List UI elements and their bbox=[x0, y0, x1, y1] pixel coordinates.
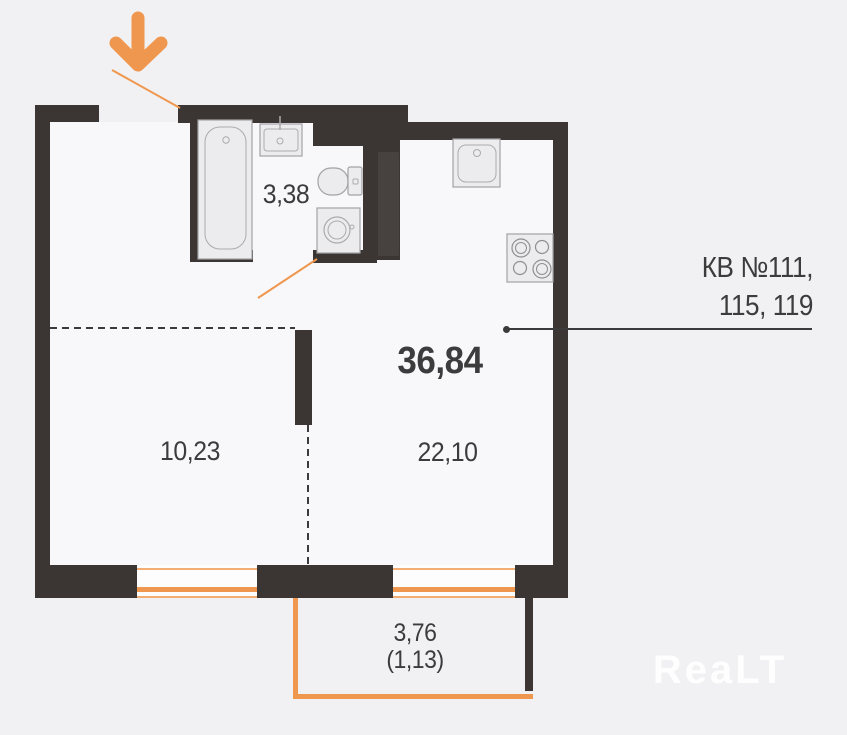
bath-sink-icon bbox=[260, 116, 302, 156]
total-area-label: 36,84 bbox=[376, 340, 505, 383]
washing-machine-icon bbox=[317, 208, 360, 253]
entrance-door-line bbox=[112, 70, 180, 108]
bathroom-area-label: 3,38 bbox=[244, 179, 329, 210]
room-area-label: 10,23 bbox=[139, 436, 240, 467]
balcony-area-label: 3,76 bbox=[360, 619, 470, 648]
bathroom-door-line bbox=[258, 259, 317, 298]
apartment-numbers-label: КВ №111, 115, 119 bbox=[624, 249, 813, 325]
entrance-arrow-icon bbox=[116, 18, 161, 65]
kitchen-sink-icon bbox=[453, 139, 500, 187]
balcony-reduced-area-label: (1,13) bbox=[360, 646, 470, 675]
stove-icon bbox=[507, 234, 553, 282]
apartment-numbers-line2: 115, 119 bbox=[624, 287, 813, 325]
floor-plan: 3,38 36,84 22,10 10,23 3,76 (1,13) КВ №1… bbox=[0, 0, 847, 735]
living-area-label: 22,10 bbox=[395, 437, 501, 468]
apartment-numbers-line1: КВ №111, bbox=[624, 249, 813, 287]
watermark-logo: ReaLT bbox=[630, 648, 810, 693]
